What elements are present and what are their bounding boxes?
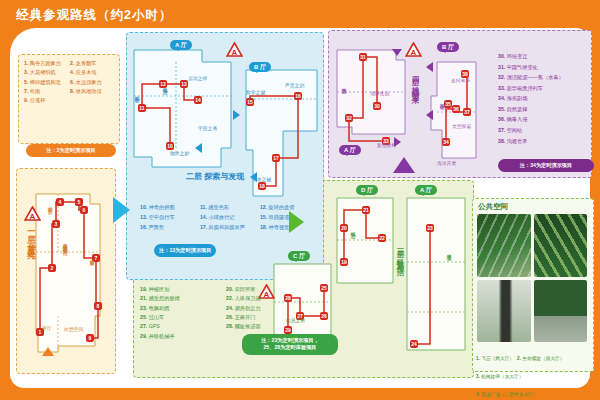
legend-item: 13. 空中自行车: [140, 215, 200, 221]
chevron-left-icon: [426, 110, 433, 120]
floor3-note-line1: 注：23为定时演示项目，: [247, 337, 333, 345]
legend-item: 29. 并联机械手: [140, 334, 226, 340]
legend-item: 36. 病毒入侵: [498, 117, 590, 123]
floor2-title: 二层 探索与发现: [186, 171, 257, 182]
legend-item: 33. 超导磁悬浮列车: [498, 86, 590, 92]
chevron-left-icon: [426, 62, 433, 72]
legend-item: 17. 鼓膜和鼓膜发声: [200, 225, 260, 231]
chevron-right-icon: [233, 110, 240, 120]
photo-life-spiral: [534, 214, 588, 277]
legend-item: 31. 中国气候变化: [498, 65, 590, 71]
legend-item: 22. 人体保卫战: [226, 296, 312, 302]
legend-item: 11. 感受色彩: [200, 205, 260, 211]
legend-item: 26. 芝麻开门: [226, 315, 312, 321]
public-space-title: 公共空间: [478, 202, 508, 212]
entrance-arrow-icon: [42, 347, 54, 356]
floor4-note-pill: 注：34为定时演示项目: [498, 159, 594, 172]
chevron-left-icon: [195, 143, 202, 153]
legend-item: 3. 机械旋律（东大厅）: [476, 374, 523, 379]
legend-item: 7. 司南: [24, 89, 70, 95]
legend-item: 3. 大花楼织机: [24, 70, 70, 76]
floor3-note-line2: 25、28为定时体验项目: [247, 344, 333, 352]
photo-mechanical-melody: [477, 280, 531, 343]
floor2-box: [126, 32, 324, 280]
chevron-down-icon: [392, 49, 402, 56]
legend-item: 38. 沟通世界: [498, 139, 590, 145]
legend-item: 34. 海底剧场: [498, 96, 590, 102]
legend-item: 2. 龙骨翻车: [70, 61, 116, 67]
floor1-note-pill: 注：3为定时演示项目: [26, 144, 116, 157]
museum-route-poster: 经典参观路线（约2小时） 1. 陶寺古观象台2. 龙骨翻车3. 大花楼织机4. …: [0, 0, 600, 400]
legend-item: 35. 自然选择: [498, 107, 590, 113]
legend-item: 9. 公道杯: [24, 98, 70, 104]
legend-item: 23. 电脑刺绣: [140, 306, 226, 312]
legend-item: 30. 环境变迁: [498, 54, 590, 60]
legend-item: 1. 飞云（西大厅）: [476, 356, 514, 361]
photo-dinosaur-plaza: [534, 280, 588, 343]
hall-pill-4f-a: A 厅: [339, 145, 361, 155]
floor1-legend-box: 1. 陶寺古观象台2. 龙骨翻车3. 大花楼织机4. 应县木塔5. 榫卯建筑构造…: [18, 54, 120, 144]
legend-item: 27. GPS: [140, 324, 226, 330]
floor3-note-pill: 注：23为定时演示项目， 25、28为定时体验项目: [242, 334, 338, 355]
hall-pill-3f-c: C 厅: [288, 251, 310, 261]
legend-item: 37. 空间站: [498, 128, 590, 134]
public-space-legend: 1. 飞云（西大厅）2. 生命螺旋（南大厅）3. 机械旋律（东大厅）4. 恐龙广…: [476, 346, 588, 400]
photo-feiyun: [477, 214, 531, 277]
legend-item: 25. 过山车: [140, 315, 226, 321]
legend-item: 16. 声聚焦: [140, 225, 200, 231]
legend-item: 20. 农田管家: [226, 287, 312, 293]
flow-arrow-1f-to-2f-icon: [113, 197, 130, 223]
floor3-title: 三层 科技与生活: [395, 242, 405, 346]
flow-arrow-2f-to-3f-icon: [289, 211, 304, 233]
legend-item: 2. 生命螺旋（南大厅）: [517, 356, 564, 361]
legend-item: 28. 螺旋推进器: [226, 324, 312, 330]
chevron-left-icon: [250, 172, 257, 182]
legend-item: 19. 种植区划: [140, 287, 226, 293]
public-space-photos: [477, 214, 587, 342]
legend-item: 24. 厨房创意台: [226, 306, 312, 312]
hall-pill-2f-a: A 厅: [170, 40, 192, 50]
hall-pill-4f-b: B 厅: [437, 42, 459, 52]
legend-item: 5. 榫卯建筑构造: [24, 80, 70, 86]
floor1-title: 一层 华夏之光: [26, 226, 38, 336]
floor2-note-pill: 注：13为定时演示项目: [154, 244, 216, 257]
legend-item: 10. 神奇的拼图: [140, 205, 200, 211]
legend-item: 6. 水运仪象台: [70, 80, 116, 86]
hall-pill-3f-a: A 厅: [415, 185, 437, 195]
hall-pill-2f-b: B 厅: [249, 62, 271, 72]
hall-pill-3f-d: D 厅: [356, 185, 378, 195]
floor4-legend: 30. 环境变迁31. 中国气候变化32. 清洁能源——氢（水幕）33. 超导磁…: [498, 54, 590, 149]
legend-item: 14. 小球旅行记: [200, 215, 260, 221]
floor1-legend: 1. 陶寺古观象台2. 龙骨翻车3. 大花楼织机4. 应县木塔5. 榫卯建筑构造…: [24, 61, 116, 108]
flow-arrow-3f-to-4f-icon: [393, 157, 415, 173]
poster-title: 经典参观路线（约2小时）: [16, 7, 172, 24]
legend-item: 8. 候风地动仪: [70, 89, 116, 95]
chevron-right-icon: [394, 137, 401, 147]
legend-item: 1. 陶寺古观象台: [24, 61, 70, 67]
floor2-title-text: 二层 探索与发现: [186, 171, 244, 182]
legend-item: 21. 感受您的脉搏: [140, 296, 226, 302]
legend-item: 4. 应县木塔: [70, 70, 116, 76]
legend-item: 4. 恐龙广场（二层中央大厅）: [476, 392, 537, 397]
legend-item: 32. 清洁能源——氢（水幕）: [498, 75, 590, 81]
